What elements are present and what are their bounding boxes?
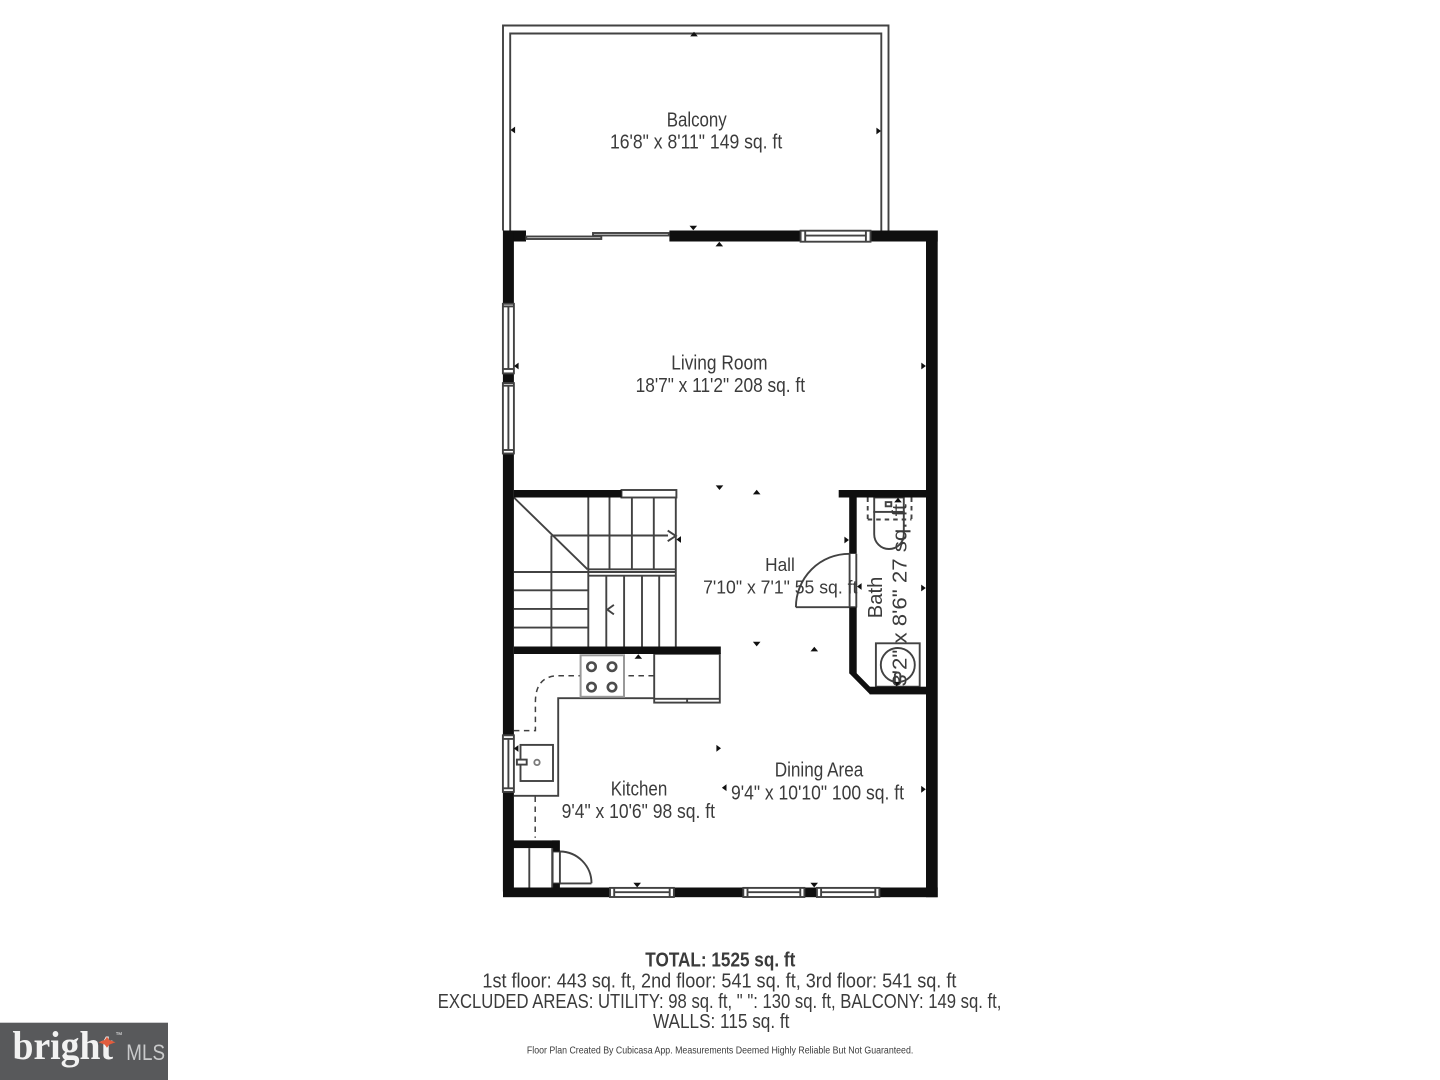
svg-text:18'7" x 11'2" 208 sq. ft: 18'7" x 11'2" 208 sq. ft xyxy=(636,374,806,397)
svg-text:Kitchen: Kitchen xyxy=(611,777,668,800)
svg-text:16'8" x 8'11" 149 sq. ft: 16'8" x 8'11" 149 sq. ft xyxy=(610,130,782,153)
svg-text:Balcony: Balcony xyxy=(667,109,728,132)
svg-text:9'4" x 10'6" 98 sq. ft: 9'4" x 10'6" 98 sq. ft xyxy=(562,800,716,823)
svg-text:TOTAL: 1525 sq. ft: TOTAL: 1525 sq. ft xyxy=(645,948,795,971)
svg-text:WALLS: 115 sq. ft: WALLS: 115 sq. ft xyxy=(653,1010,790,1033)
svg-text:MLS: MLS xyxy=(126,1040,165,1065)
svg-text:Bath: Bath xyxy=(864,577,887,619)
svg-text:Hall: Hall xyxy=(765,555,795,575)
svg-text:Dining Area: Dining Area xyxy=(775,759,864,782)
svg-text:Floor Plan Created By Cubicasa: Floor Plan Created By Cubicasa App. Meas… xyxy=(527,1046,913,1057)
svg-text:1st floor: 443 sq. ft, 2nd flo: 1st floor: 443 sq. ft, 2nd floor: 541 sq… xyxy=(482,970,956,993)
svg-text:Living Room: Living Room xyxy=(671,351,767,374)
svg-text:3'2" x 8'6" 27 sq. ft: 3'2" x 8'6" 27 sq. ft xyxy=(888,504,911,687)
svg-text:7'10" x 7'1" 55 sq. ft: 7'10" x 7'1" 55 sq. ft xyxy=(703,578,857,598)
svg-text:™: ™ xyxy=(115,1032,122,1039)
svg-text:9'4" x 10'10" 100 sq. ft: 9'4" x 10'10" 100 sq. ft xyxy=(731,782,904,805)
svg-text:bright: bright xyxy=(13,1023,114,1068)
